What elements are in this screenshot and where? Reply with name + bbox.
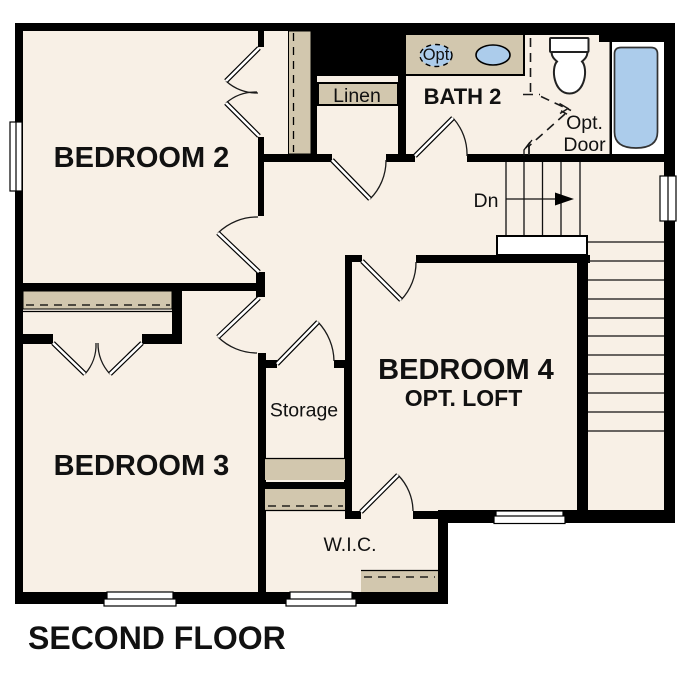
svg-text:Linen: Linen <box>333 85 381 107</box>
svg-text:W.I.C.: W.I.C. <box>323 534 376 556</box>
svg-text:SECOND FLOOR: SECOND FLOOR <box>28 620 286 656</box>
svg-text:BEDROOM 4: BEDROOM 4 <box>378 354 554 386</box>
svg-text:Opt.: Opt. <box>566 112 603 134</box>
svg-text:Door: Door <box>563 134 606 156</box>
svg-text:BEDROOM 3: BEDROOM 3 <box>54 450 230 482</box>
svg-text:Opt: Opt <box>423 46 450 64</box>
svg-text:OPT. LOFT: OPT. LOFT <box>405 385 523 411</box>
svg-text:BEDROOM 2: BEDROOM 2 <box>54 142 230 174</box>
svg-text:BATH 2: BATH 2 <box>424 84 502 109</box>
svg-text:Dn: Dn <box>474 190 499 212</box>
svg-text:Storage: Storage <box>270 400 338 422</box>
